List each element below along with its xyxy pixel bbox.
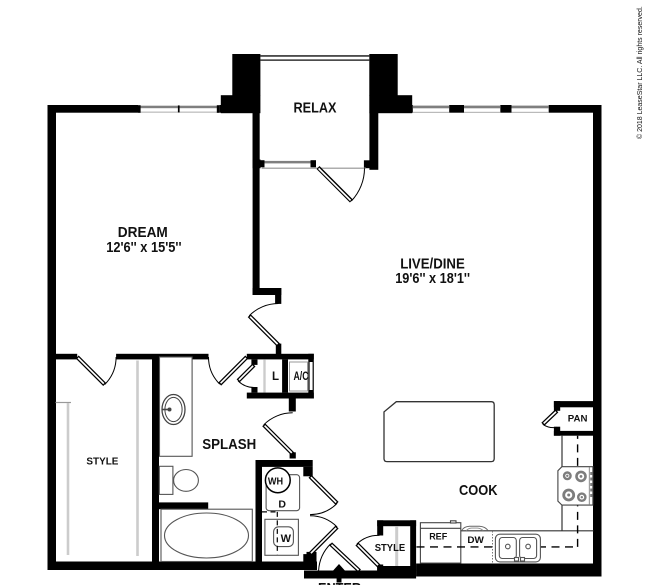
svg-text:STYLE: STYLE <box>375 543 406 554</box>
svg-text:12'6'' x 15'5'': 12'6'' x 15'5'' <box>106 240 181 256</box>
svg-text:DREAM: DREAM <box>118 225 168 241</box>
svg-text:COOK: COOK <box>459 483 498 499</box>
svg-text:D: D <box>278 499 286 511</box>
svg-text:ENTER: ENTER <box>318 581 361 585</box>
svg-text:SPLASH: SPLASH <box>202 437 256 453</box>
svg-text:© 2018 LeaseStar LLC. All righ: © 2018 LeaseStar LLC. All rights reserve… <box>636 6 644 139</box>
svg-text:PAN: PAN <box>568 413 588 424</box>
svg-text:WH: WH <box>268 477 283 488</box>
svg-text:A/C: A/C <box>294 371 309 383</box>
svg-text:L: L <box>272 371 279 383</box>
svg-text:DW: DW <box>467 535 484 546</box>
svg-text:19'6'' x 18'1'': 19'6'' x 18'1'' <box>395 271 470 287</box>
svg-text:REF: REF <box>429 531 448 541</box>
svg-text:LIVE/DINE: LIVE/DINE <box>400 256 465 272</box>
svg-text:RELAX: RELAX <box>294 101 337 117</box>
svg-text:STYLE: STYLE <box>86 457 118 468</box>
svg-text:W: W <box>281 533 292 545</box>
